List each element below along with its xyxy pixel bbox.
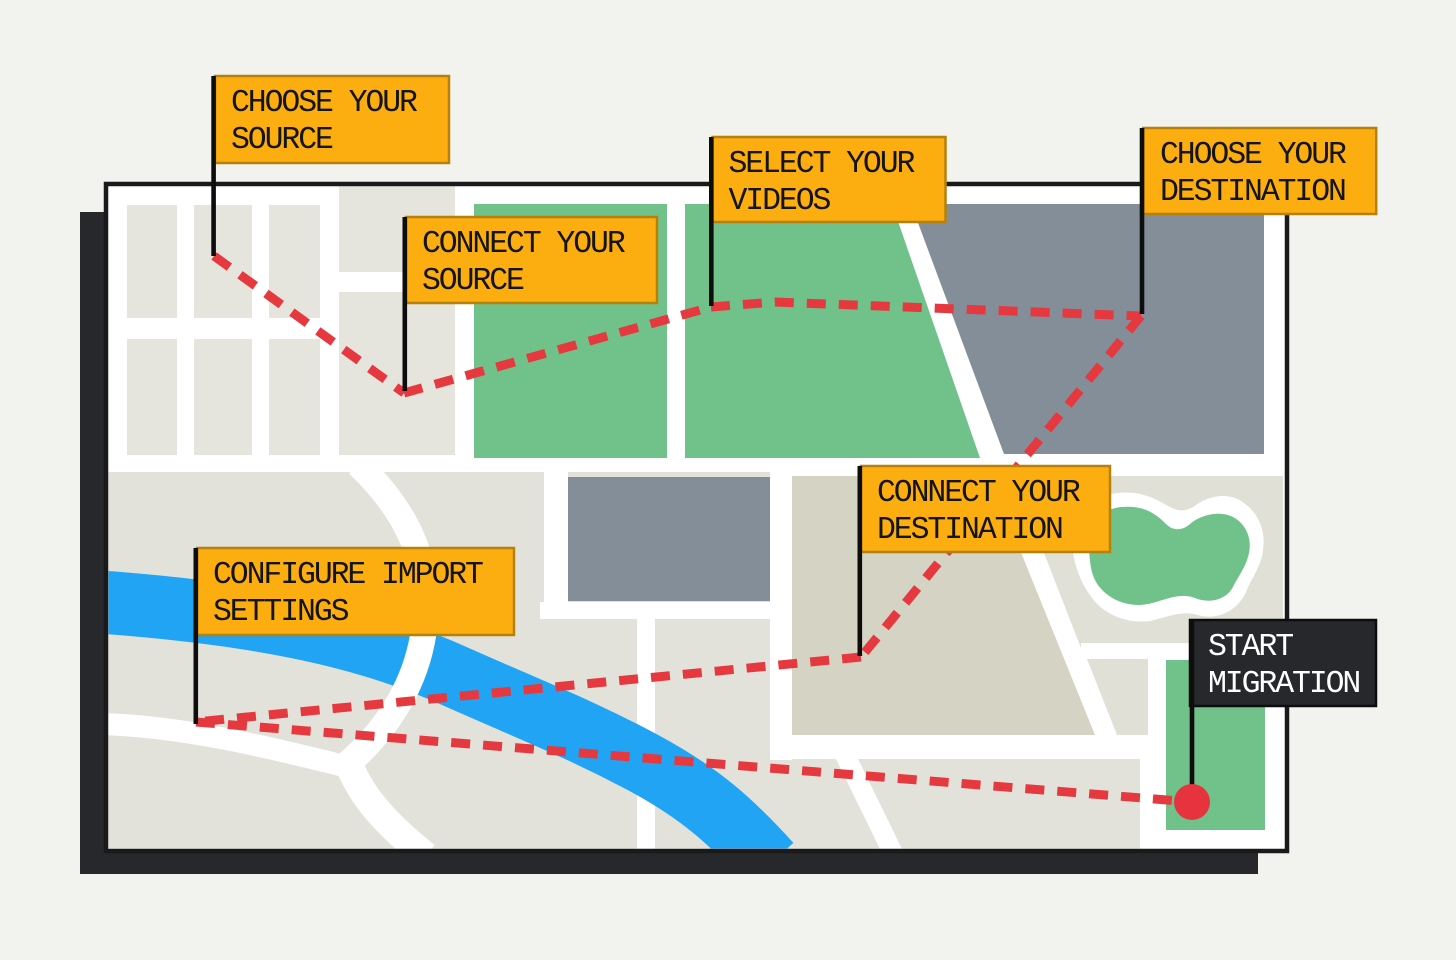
- svg-text:CONNECT YOUR: CONNECT YOUR: [422, 227, 626, 262]
- svg-text:SOURCE: SOURCE: [422, 264, 524, 299]
- svg-text:SETTINGS: SETTINGS: [213, 595, 349, 630]
- svg-text:CHOOSE YOUR: CHOOSE YOUR: [231, 86, 418, 121]
- svg-text:CONFIGURE IMPORT: CONFIGURE IMPORT: [213, 558, 483, 593]
- svg-text:VIDEOS: VIDEOS: [729, 184, 831, 219]
- svg-text:DESTINATION: DESTINATION: [1160, 175, 1345, 210]
- svg-text:SOURCE: SOURCE: [231, 123, 333, 158]
- svg-text:DESTINATION: DESTINATION: [877, 513, 1062, 548]
- svg-text:MIGRATION: MIGRATION: [1208, 667, 1359, 702]
- svg-text:START: START: [1208, 630, 1293, 665]
- svg-text:SELECT YOUR: SELECT YOUR: [729, 147, 916, 182]
- svg-text:CHOOSE YOUR: CHOOSE YOUR: [1160, 138, 1347, 173]
- svg-text:CONNECT YOUR: CONNECT YOUR: [877, 476, 1081, 511]
